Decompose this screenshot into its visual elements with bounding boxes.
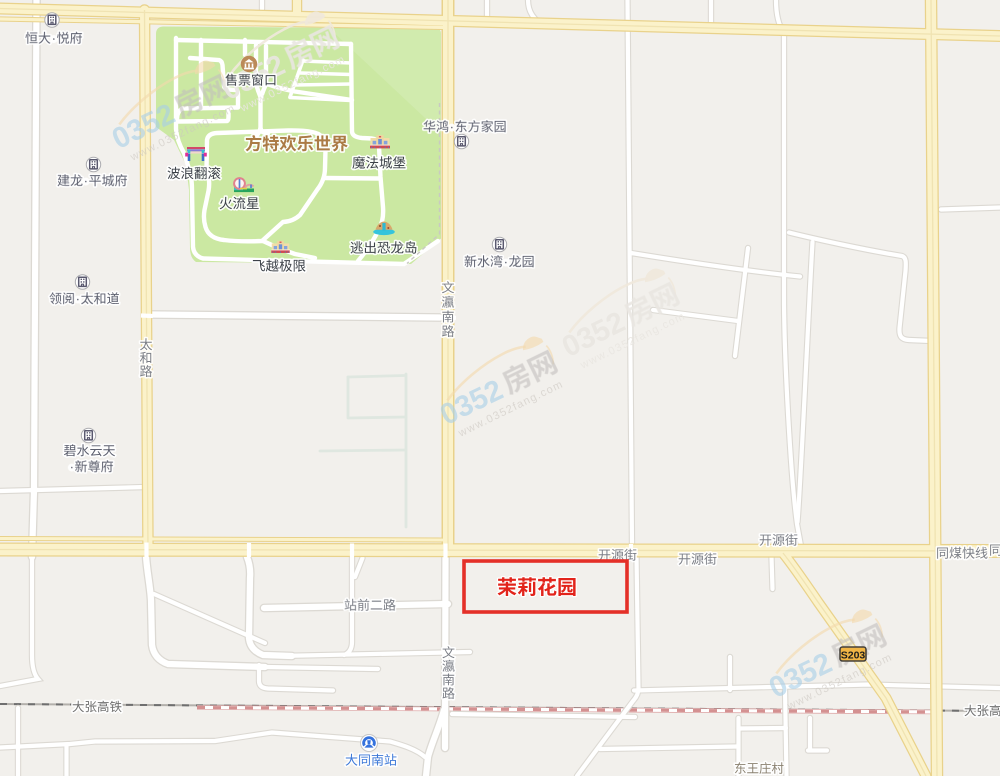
svg-text:S203: S203 (841, 650, 866, 662)
